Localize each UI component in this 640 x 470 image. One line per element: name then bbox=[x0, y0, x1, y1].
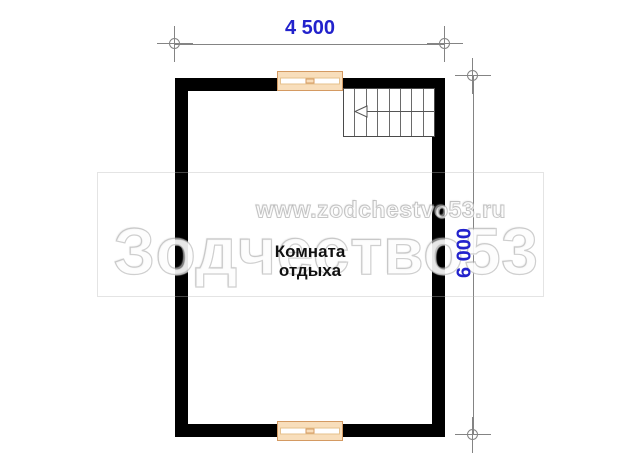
dimension-label-width: 4 500 bbox=[285, 17, 335, 40]
room-name-label: Комната отдыха bbox=[275, 242, 346, 280]
stair-tread bbox=[424, 89, 434, 136]
dimension-line-horizontal bbox=[175, 44, 445, 45]
axis-marker-icon bbox=[455, 58, 491, 94]
marker-circle bbox=[169, 38, 180, 49]
stair-arrow-head-icon bbox=[352, 104, 368, 119]
window-bottom bbox=[277, 421, 343, 441]
window-top bbox=[277, 71, 343, 91]
marker-circle bbox=[439, 38, 450, 49]
stair-direction-arrow bbox=[366, 111, 435, 112]
stair-tread bbox=[401, 89, 412, 136]
stair-tread bbox=[390, 89, 401, 136]
stair-tread bbox=[367, 89, 378, 136]
stair-tread bbox=[412, 89, 423, 136]
room-name-line1: Комната bbox=[275, 242, 346, 261]
marker-circle bbox=[467, 429, 478, 440]
room-name-line2: отдыха bbox=[275, 261, 346, 280]
window-detail bbox=[306, 429, 315, 434]
stair-tread bbox=[378, 89, 389, 136]
floor-plan-canvas: 4 500 6 000 Комната отды bbox=[0, 0, 640, 470]
window-detail bbox=[306, 79, 315, 84]
axis-marker-icon bbox=[157, 26, 193, 62]
marker-circle bbox=[467, 70, 478, 81]
dimension-label-height: 6 000 bbox=[454, 228, 477, 278]
axis-marker-icon bbox=[427, 26, 463, 62]
axis-marker-icon bbox=[455, 417, 491, 453]
